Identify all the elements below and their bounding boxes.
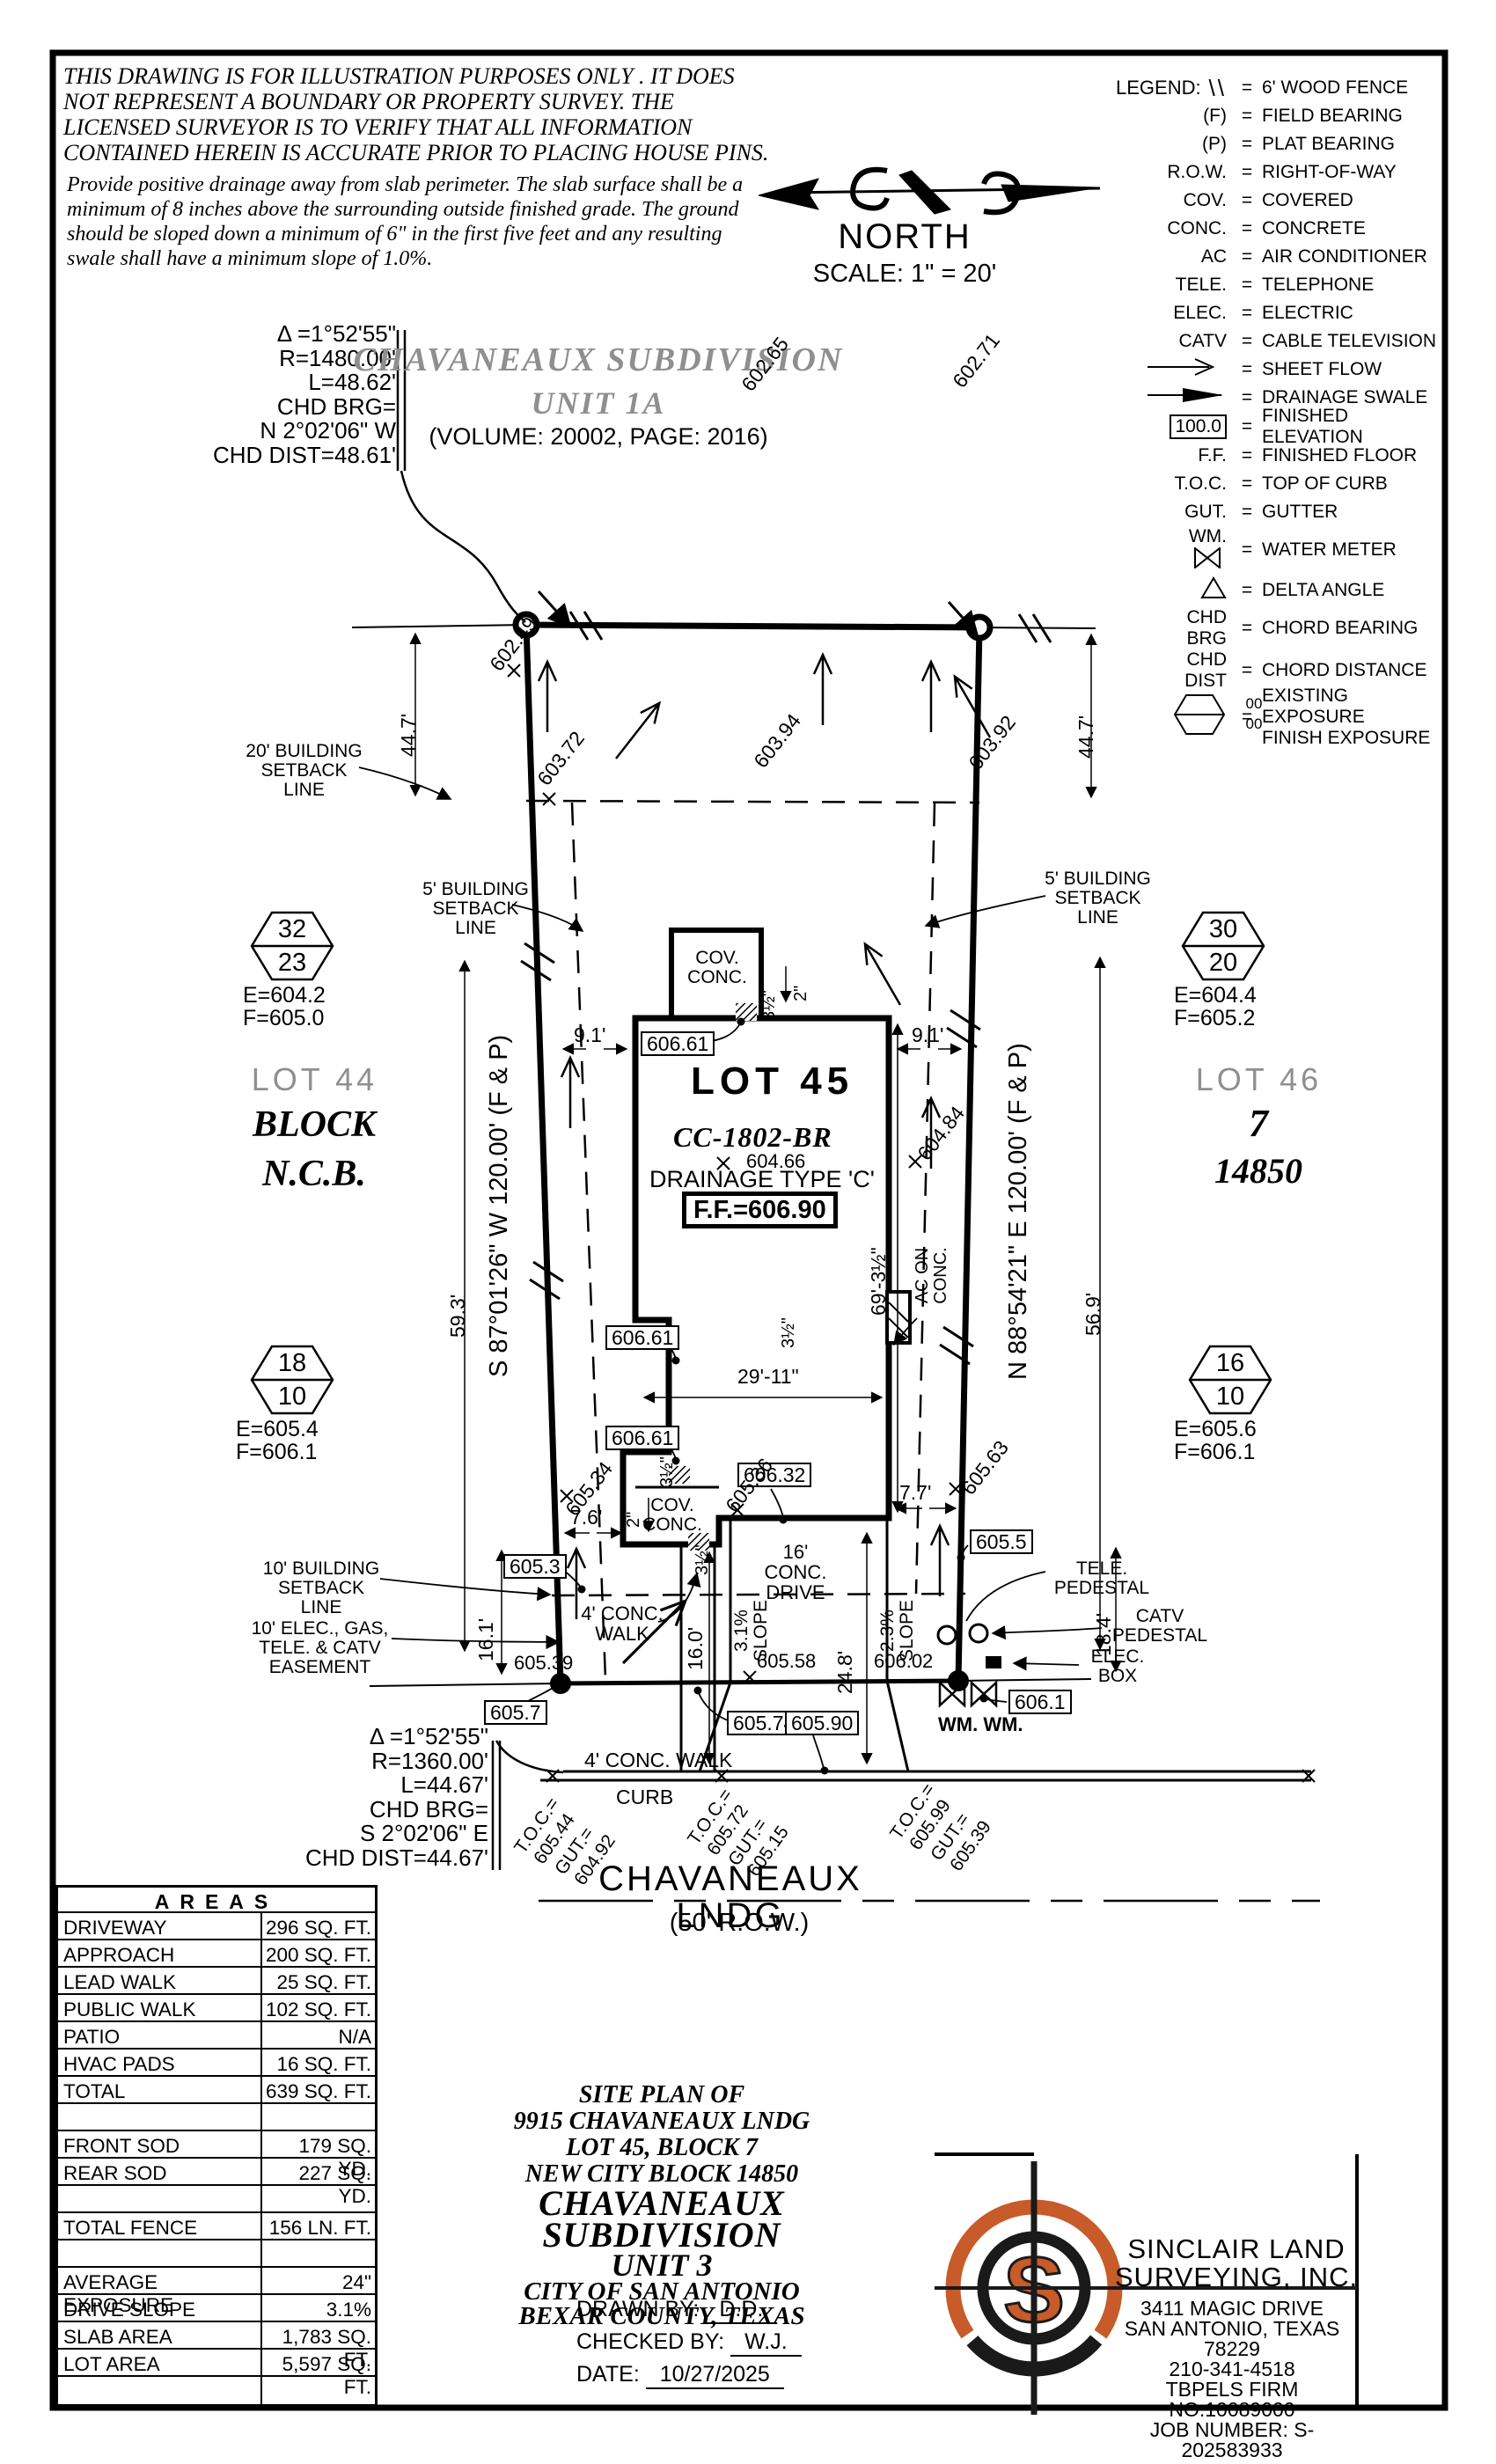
table-row: AVERAGE EXPOSURE24" bbox=[58, 2268, 375, 2295]
legend-row: \\=6' WOOD FENCE bbox=[1144, 74, 1452, 102]
table-row: TOTAL FENCE156 LN. FT. bbox=[58, 2213, 375, 2240]
legend-row: CONC.=CONCRETE bbox=[1144, 215, 1452, 243]
title-block-line: SITE PLAN OF bbox=[433, 2082, 891, 2108]
public-walk-label: 4' CONC. WALK bbox=[584, 1749, 732, 1771]
title-block-subdivision: CHAVANEAUX SUBDIVISION bbox=[433, 2188, 891, 2251]
legend-row: ELEC.=ELECTRIC bbox=[1144, 299, 1452, 327]
drive-slope-31: 3.1% SLOPE bbox=[732, 1596, 771, 1665]
legend-row: R.O.W.=RIGHT-OF-WAY bbox=[1144, 158, 1452, 187]
title-block-line: 9915 CHAVANEAUX LNDG bbox=[433, 2108, 891, 2135]
dim-35-a: 3½" bbox=[760, 990, 779, 1021]
date-value: 10/27/2025 bbox=[646, 2362, 784, 2389]
dim-35-d: 3½" bbox=[693, 1544, 712, 1575]
elevation-box-60590: 605.90 bbox=[785, 1711, 859, 1735]
dim-447-east: 44.7' bbox=[1075, 715, 1096, 759]
catv-pedestal-label: CATV PEDESTAL bbox=[1107, 1607, 1213, 1646]
elevation-box-60661-b: 606.61 bbox=[605, 1325, 679, 1350]
legend-row: TELE.=TELEPHONE bbox=[1144, 271, 1452, 299]
table-row: DRIVE SLOPE3.1% bbox=[58, 2295, 375, 2322]
covered-concrete-label-rear: COV. CONC. bbox=[678, 949, 757, 987]
table-row: APPROACH200 SQ. FT. bbox=[58, 1940, 375, 1968]
delta-angle-icon bbox=[1200, 576, 1227, 600]
table-row: TOTAL639 SQ. FT. bbox=[58, 2077, 375, 2104]
covered-concrete-label-front: COV. CONC. bbox=[641, 1496, 704, 1535]
north-arrow-icon bbox=[759, 170, 1100, 214]
firm-name-line1: SINCLAIR LAND bbox=[1104, 2233, 1368, 2265]
elec-box-symbol bbox=[986, 1656, 1001, 1668]
sheet-flow-icon bbox=[1144, 357, 1232, 382]
legend-row: =SHEET FLOW bbox=[1144, 356, 1452, 384]
legend: \\=6' WOOD FENCE (F)=FIELD BEARING (P)=P… bbox=[1144, 74, 1452, 743]
easement-label: 10' ELEC., GAS, TELE. & CATV EASEMENT bbox=[243, 1619, 397, 1677]
water-meter-icon bbox=[1194, 547, 1221, 568]
drawn-by-label: DRAWN BY: bbox=[576, 2297, 699, 2321]
dim-569: 56.9' bbox=[1082, 1293, 1104, 1336]
exposure-hexagon-se: 16 10 E=605.6 F=606.1 bbox=[1186, 1343, 1274, 1421]
dim-35-c: 3½" bbox=[658, 1456, 677, 1487]
exposure-hexagon-ne: 30 20 E=604.4 F=605.2 bbox=[1179, 909, 1267, 987]
dim-2-b: 2" bbox=[625, 1512, 643, 1528]
dim-160: 16.0' bbox=[685, 1627, 706, 1670]
north-label: NORTH bbox=[799, 218, 1010, 255]
street-row: (50' R.O.W.) bbox=[607, 1910, 871, 1936]
legend-row: (P)=PLAT BEARING bbox=[1144, 130, 1452, 158]
firm-tbpels: TBPELS FIRM NO.10089000 bbox=[1100, 2380, 1364, 2420]
legend-row: =DELTA ANGLE bbox=[1144, 574, 1452, 607]
lot44-ncb-label: N.C.B. bbox=[239, 1155, 389, 1193]
ac-on-conc-label: AC ON CONC. bbox=[913, 1238, 950, 1313]
lot44-label: LOT 44 bbox=[242, 1063, 387, 1096]
dim-447-west: 44.7' bbox=[398, 714, 419, 757]
subdivision-volume: (VOLUME: 20002, PAGE: 2016) bbox=[343, 424, 854, 449]
legend-row: (F)=FIELD BEARING bbox=[1144, 102, 1452, 130]
dim-76: 7.6' bbox=[570, 1507, 602, 1528]
tele-pedestal-symbol bbox=[938, 1626, 956, 1644]
disclaimer-paragraph-2: Provide positive drainage away from slab… bbox=[67, 172, 771, 271]
setback-5-label-east: 5' BUILDING SETBACK LINE bbox=[1043, 869, 1153, 928]
lot45-label: LOT 45 bbox=[691, 1061, 854, 1102]
curve-data-bottom: Δ =1°52'55" R=1360.00' L=44.67' CHD BRG=… bbox=[299, 1725, 488, 1870]
setback-5-label-west: 5' BUILDING SETBACK LINE bbox=[421, 880, 531, 938]
elevation-box-60661-c: 606.61 bbox=[605, 1426, 679, 1450]
lot44-block-label: BLOCK bbox=[239, 1105, 389, 1144]
dim-77: 7.7' bbox=[899, 1482, 931, 1503]
areas-table: AREAS DRIVEWAY296 SQ. FT. APPROACH200 SQ… bbox=[55, 1885, 378, 2407]
firm-details: 3411 MAGIC DRIVE SAN ANTONIO, TEXAS 7822… bbox=[1100, 2299, 1364, 2460]
checked-by-value: W.J. bbox=[730, 2329, 802, 2357]
lot46-block-label: 7 bbox=[1188, 1104, 1329, 1144]
lot-boundary bbox=[352, 625, 1096, 1686]
tele-pedestal-label: TELE. PEDESTAL bbox=[1049, 1559, 1155, 1598]
title-block-line: LOT 45, BLOCK 7 bbox=[433, 2135, 891, 2161]
table-row bbox=[58, 2377, 375, 2404]
setback-10-label: 10' BUILDING SETBACK LINE bbox=[260, 1559, 383, 1617]
catv-pedestal-symbol bbox=[970, 1624, 987, 1642]
dim-693: 69'-3½" bbox=[868, 1247, 889, 1316]
firm-name-line2: SURVEYING, INC. bbox=[1104, 2262, 1368, 2293]
title-block-unit: UNIT 3 bbox=[433, 2251, 891, 2279]
elevation-box-60661-a: 606.61 bbox=[641, 1031, 715, 1056]
curb-label: CURB bbox=[616, 1786, 673, 1808]
elevation-box-6061: 606.1 bbox=[1008, 1690, 1072, 1714]
drive-label: 16' CONC. DRIVE bbox=[757, 1542, 834, 1602]
table-row: FRONT SOD179 SQ. YD. bbox=[58, 2131, 375, 2159]
ac-unit bbox=[887, 1292, 910, 1343]
drawn-by-value: D.D. bbox=[705, 2297, 777, 2324]
spot-60539: 605.39 bbox=[514, 1653, 573, 1673]
table-row: REAR SOD227 SQ. YD. bbox=[58, 2159, 375, 2186]
lot46-label: LOT 46 bbox=[1186, 1063, 1331, 1096]
dim-91-west: 9.1' bbox=[574, 1024, 605, 1045]
checked-by-label: CHECKED BY: bbox=[576, 2329, 724, 2354]
door-hatch-1 bbox=[736, 1003, 757, 1021]
exposure-hexagon-icon: 00 00 bbox=[1172, 693, 1227, 737]
firm-phone: 210-341-4518 bbox=[1100, 2359, 1364, 2380]
date-label: DATE: bbox=[576, 2362, 640, 2387]
exposure-hexagon-nw: 32 23 E=604.2 F=605.0 bbox=[248, 909, 336, 987]
signoff-block: DRAWN BY: D.D. CHECKED BY: W.J. DATE: 10… bbox=[576, 2297, 802, 2394]
water-meter-labels: WM. WM. bbox=[938, 1714, 1023, 1734]
legend-row: AC=AIR CONDITIONER bbox=[1144, 243, 1452, 271]
legend-row: T.O.C.=TOP OF CURB bbox=[1144, 470, 1452, 498]
lot45-model-label: CC-1802-BR bbox=[673, 1123, 832, 1153]
bearing-east: N 88°54'21" E 120.00' (F & P) bbox=[1005, 1043, 1031, 1380]
elevation-box-6053: 605.3 bbox=[503, 1554, 567, 1579]
drive-slope-23: 2.3% SLOPE bbox=[878, 1596, 917, 1665]
table-row: PUBLIC WALK102 SQ. FT. bbox=[58, 1995, 375, 2022]
table-row bbox=[58, 2104, 375, 2131]
table-row: SLAB AREA1,783 SQ. FT. bbox=[58, 2322, 375, 2350]
dim-91-east: 9.1' bbox=[912, 1024, 943, 1045]
drainage-swale-icon bbox=[1144, 385, 1232, 410]
dim-248: 24.8' bbox=[834, 1651, 855, 1694]
lead-walk-label: 4' CONC. WALK bbox=[574, 1603, 671, 1644]
exposure-hexagon-sw: 18 10 E=605.4 F=606.1 bbox=[248, 1343, 336, 1421]
table-row bbox=[58, 2186, 375, 2213]
lot45-drainage-type: DRAINAGE TYPE 'C' bbox=[649, 1167, 875, 1192]
title-block: SITE PLAN OF 9915 CHAVANEAUX LNDG LOT 45… bbox=[433, 2082, 891, 2328]
table-row: LEAD WALK25 SQ. FT. bbox=[58, 1968, 375, 1995]
legend-row: WM. = WATER METER bbox=[1144, 526, 1452, 574]
dim-161: 16.1' bbox=[475, 1618, 496, 1661]
legend-row: F.F.=FINISHED FLOOR bbox=[1144, 442, 1452, 470]
elec-box-label: ELEC. BOX bbox=[1081, 1647, 1155, 1686]
legend-row: 100.0=FINISHED ELEVATION bbox=[1144, 412, 1452, 442]
finished-elevation-box-icon: 100.0 bbox=[1170, 414, 1227, 439]
firm-job-number: JOB NUMBER: S-202583933 bbox=[1100, 2420, 1364, 2460]
table-row: HVAC PADS16 SQ. FT. bbox=[58, 2050, 375, 2077]
areas-table-title: AREAS bbox=[58, 1888, 375, 1913]
table-row bbox=[58, 2240, 375, 2268]
firm-address-1: 3411 MAGIC DRIVE bbox=[1100, 2299, 1364, 2319]
wood-fence-icon: \\ bbox=[1144, 75, 1232, 102]
legend-row: CATV=CABLE TELEVISION bbox=[1144, 327, 1452, 356]
legend-row: CHD BRG=CHORD BEARING bbox=[1144, 607, 1452, 649]
finished-floor-elevation: F.F.=606.90 bbox=[682, 1192, 838, 1228]
elevation-box-6055: 605.5 bbox=[970, 1529, 1033, 1554]
dim-2911: 29'-11" bbox=[737, 1366, 799, 1387]
firm-address-2: SAN ANTONIO, TEXAS 78229 bbox=[1100, 2319, 1364, 2359]
dim-35-b: 3½" bbox=[780, 1317, 798, 1348]
table-row: PATION/A bbox=[58, 2022, 375, 2050]
table-row: DRIVEWAY296 SQ. FT. bbox=[58, 1913, 375, 1940]
elevation-box-6057: 605.7 bbox=[484, 1700, 547, 1725]
dim-2-a: 2" bbox=[792, 986, 810, 1001]
bearing-west: S 87°01'26" W 120.00' (F & P) bbox=[486, 1035, 512, 1377]
wm-label: WM. bbox=[1189, 526, 1227, 546]
setback-20-label: 20' BUILDING SETBACK LINE bbox=[245, 742, 363, 800]
disclaimer-paragraph-1: THIS DRAWING IS FOR ILLUSTRATION PURPOSE… bbox=[63, 63, 776, 165]
legend-row: GUT.=GUTTER bbox=[1144, 498, 1452, 526]
subdivision-title-line2: UNIT 1A bbox=[343, 387, 854, 421]
dim-593: 59.3' bbox=[447, 1294, 468, 1338]
legend-row: COV.=COVERED bbox=[1144, 187, 1452, 215]
scale-label: SCALE: 1" = 20' bbox=[764, 260, 1045, 287]
legend-row: 00 00 = EXISTING EXPOSUREFINISH EXPOSURE bbox=[1144, 692, 1452, 743]
table-row: LOT AREA5,597 SQ. FT. bbox=[58, 2350, 375, 2377]
site-plan-sheet: S THIS DRAWING IS FOR ILLUSTRATION PURPO… bbox=[0, 0, 1496, 2464]
lot46-ncb-label: 14850 bbox=[1179, 1153, 1338, 1190]
